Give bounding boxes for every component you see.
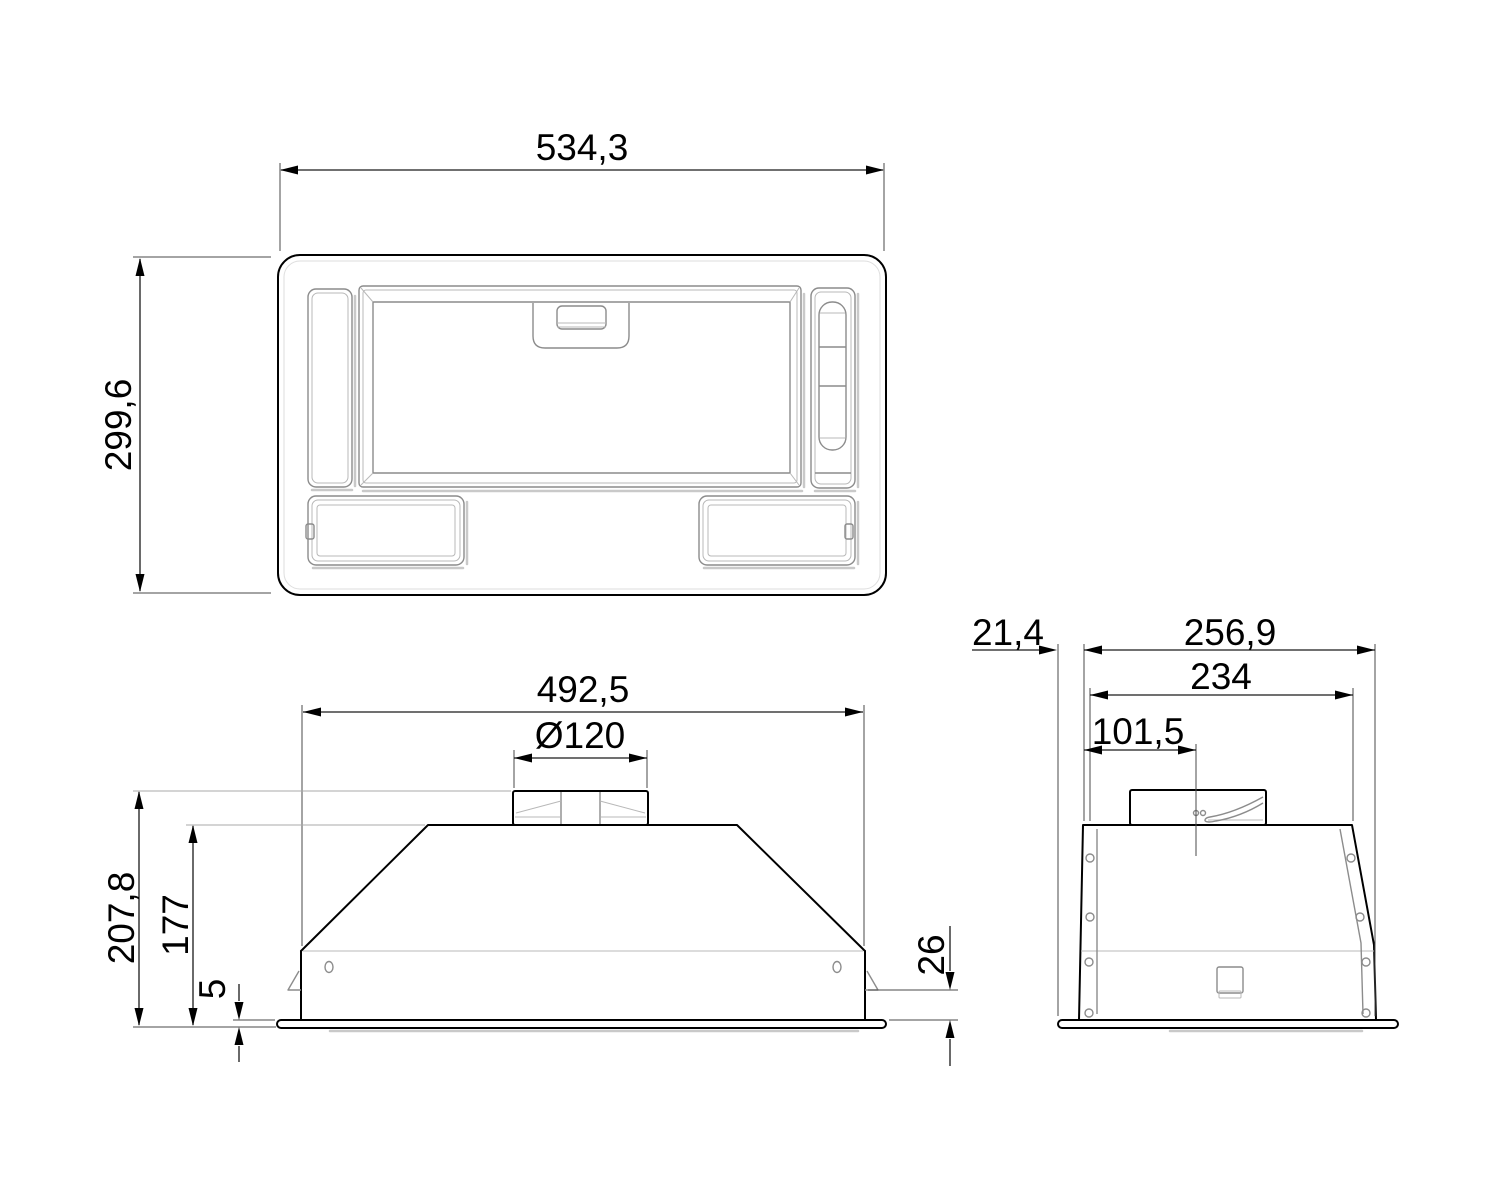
front-view: 492,5 Ø120 207,8 177 — [101, 669, 958, 1066]
flange-overhang-label: 21,4 — [972, 612, 1044, 653]
height-total-label: 207,8 — [101, 872, 142, 965]
duct-spigot-front — [513, 791, 648, 825]
dimension-duct-offset: 101,5 — [1084, 711, 1196, 856]
depth-total-label: 256,9 — [1184, 612, 1277, 653]
top-width-label: 534,3 — [536, 127, 629, 168]
dimension-drawing: 534,3 299,6 — [0, 0, 1500, 1200]
technical-drawing-page: 534,3 299,6 — [0, 0, 1500, 1200]
side-fold-strip-left — [1085, 829, 1097, 1017]
flange-thickness-label: 5 — [192, 979, 233, 1000]
depth-body-label: 234 — [1190, 656, 1252, 697]
spring-clip-right — [865, 971, 878, 990]
canopy-outline — [301, 825, 865, 951]
side-view: 21,4 256,9 234 101,5 — [972, 612, 1398, 1031]
front-width-label: 492,5 — [537, 669, 630, 710]
top-depth-label: 299,6 — [98, 379, 139, 472]
cable-connection-box — [1217, 967, 1243, 998]
side-fold-strip-right — [1340, 829, 1370, 1017]
mounting-flange-front — [277, 1020, 886, 1031]
duct-offset-label: 101,5 — [1092, 711, 1185, 752]
mounting-flange-side — [1058, 1020, 1398, 1031]
screw-hole-left — [325, 962, 333, 973]
duct-spigot-side — [1130, 790, 1266, 825]
spring-clip-left — [288, 971, 301, 990]
height-body-label: 177 — [155, 894, 196, 956]
clip-clearance-label: 26 — [911, 934, 952, 975]
dimension-top-depth: 299,6 — [98, 257, 271, 593]
dimension-flange-overhang: 21,4 — [972, 612, 1058, 1016]
dimension-flange-thickness: 5 — [192, 979, 275, 1062]
duct-diameter-label: Ø120 — [535, 715, 626, 756]
dimension-duct-diameter: Ø120 — [514, 715, 647, 788]
dimension-top-width: 534,3 — [280, 127, 884, 251]
dimension-clip-clearance: 26 — [868, 926, 958, 1066]
top-view: 534,3 299,6 — [98, 127, 886, 595]
screw-hole-right — [833, 962, 841, 973]
lower-box — [301, 951, 865, 1020]
